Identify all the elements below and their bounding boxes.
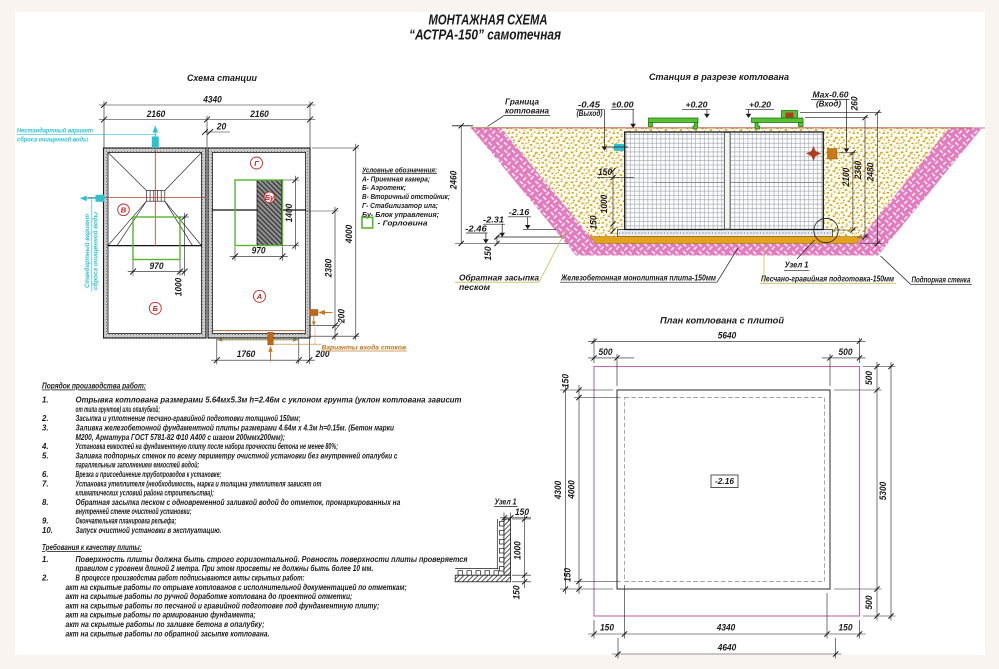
svg-text:3.: 3. xyxy=(42,424,49,433)
svg-text:1760: 1760 xyxy=(237,349,256,359)
svg-text:150: 150 xyxy=(515,507,529,517)
svg-text:8.: 8. xyxy=(42,498,49,507)
svg-text:500: 500 xyxy=(599,347,613,357)
svg-text:4000: 4000 xyxy=(567,480,577,499)
svg-text:сброса очищенной воды: сброса очищенной воды xyxy=(17,136,88,144)
svg-text:Узел 1: Узел 1 xyxy=(495,497,517,506)
svg-text:+0.20: +0.20 xyxy=(686,101,709,110)
svg-text:параллельным заполнением емкос: параллельным заполнением емкостей водой; xyxy=(76,461,200,470)
svg-text:500: 500 xyxy=(839,347,853,357)
svg-text:4000: 4000 xyxy=(344,225,354,244)
svg-text:1000: 1000 xyxy=(513,541,523,560)
svg-text:150: 150 xyxy=(483,247,493,261)
svg-text:4640: 4640 xyxy=(717,643,736,653)
svg-text:Засыпка и уплотнение песчано-г: Засыпка и уплотнение песчано-гравийной п… xyxy=(76,414,301,423)
svg-text:150: 150 xyxy=(839,623,853,633)
svg-text:500: 500 xyxy=(864,596,874,610)
svg-text:акт на скрытые работы по ручно: акт на скрытые работы по ручной доработк… xyxy=(66,592,353,601)
svg-text:2.: 2. xyxy=(41,414,49,423)
svg-text:(Вход): (Вход) xyxy=(816,100,841,109)
svg-text:Схема станции: Схема станции xyxy=(187,73,257,83)
svg-text:Подпорная стенка: Подпорная стенка xyxy=(912,275,971,284)
svg-text:260: 260 xyxy=(850,97,860,112)
svg-text:150: 150 xyxy=(600,623,614,633)
svg-text:150: 150 xyxy=(561,374,571,388)
svg-text:Г- Стабилизатор ила;: Г- Стабилизатор ила; xyxy=(362,201,438,210)
svg-text:1000: 1000 xyxy=(599,195,609,214)
svg-text:Поверхность плиты должна быть: Поверхность плиты должна быть строго гор… xyxy=(76,555,468,564)
svg-text:200: 200 xyxy=(337,309,347,324)
svg-text:А: А xyxy=(256,292,262,301)
svg-text:Окончательная планировка релье: Окончательная планировка рельефа; xyxy=(76,517,177,526)
svg-text:акт на скрытые работы по отрыв: акт на скрытые работы по отрывке котлова… xyxy=(66,583,408,592)
svg-text:Обратная засыпка: Обратная засыпка xyxy=(459,274,540,283)
svg-text:климатических условий района с: климатических условий района строительст… xyxy=(76,489,215,498)
svg-text:5300: 5300 xyxy=(878,482,888,501)
svg-text:2100: 2100 xyxy=(841,168,851,187)
svg-text:1400: 1400 xyxy=(284,204,294,223)
svg-text:9.: 9. xyxy=(42,517,49,526)
svg-text:4300: 4300 xyxy=(553,481,563,500)
svg-text:-2.46: -2.46 xyxy=(465,224,487,233)
svg-text:акт на скрытые работы по обрат: акт на скрытые работы по обратной засыпк… xyxy=(66,629,270,638)
svg-text:6.: 6. xyxy=(42,470,49,479)
svg-text:Б: Б xyxy=(153,304,159,313)
svg-text:Станция в разрезе котлована: Станция в разрезе котлована xyxy=(649,72,789,82)
svg-text:2380: 2380 xyxy=(323,259,333,278)
svg-text:Порядок производства работ:: Порядок производства работ: xyxy=(42,382,146,391)
svg-text:20: 20 xyxy=(216,121,226,131)
svg-text:от типа грунтов) или опалубкой: от типа грунтов) или опалубкой; xyxy=(76,405,161,414)
svg-text:±0.00: ±0.00 xyxy=(612,101,635,110)
svg-text:котлована: котлована xyxy=(505,107,550,116)
svg-text:Требования к качеству плиты:: Требования к качеству плиты: xyxy=(42,543,142,552)
svg-text:Заливка подпорных стенок по вс: Заливка подпорных стенок по всему периме… xyxy=(76,451,399,460)
svg-text:Бу: Бу xyxy=(265,193,275,202)
svg-text:сброса очищенной воды: сброса очищенной воды xyxy=(91,212,99,290)
svg-text:акт на скрытые работы по залив: акт на скрытые работы по заливке бетона … xyxy=(66,620,265,629)
svg-text:песком: песком xyxy=(459,283,490,292)
svg-text:Железобетонная монолитная плит: Железобетонная монолитная плита-150мм xyxy=(560,273,716,282)
svg-text:(Выход): (Выход) xyxy=(577,109,603,118)
svg-text:В процессе производства работ: В процессе производства работ подписываю… xyxy=(76,574,305,583)
svg-text:-2.16: -2.16 xyxy=(715,477,735,486)
svg-text:1000: 1000 xyxy=(174,278,184,297)
svg-text:Заливка железобетонной фундаме: Заливка железобетонной фундаментной плит… xyxy=(76,424,395,433)
svg-text:500: 500 xyxy=(864,371,874,385)
svg-text:7.: 7. xyxy=(42,479,49,488)
svg-text:150: 150 xyxy=(512,586,522,600)
svg-text:Условные обозначения:: Условные обозначения: xyxy=(362,165,437,174)
svg-text:Б- Аэротенк;: Б- Аэротенк; xyxy=(362,183,406,192)
svg-text:А- Приемная камера;: А- Приемная камера; xyxy=(361,174,430,183)
svg-text:+0.20: +0.20 xyxy=(749,101,772,110)
svg-text:М200, Арматура ГОСТ 5781-82 Ф1: М200, Арматура ГОСТ 5781-82 Ф10 А400 с ш… xyxy=(76,433,286,442)
svg-text:Узел 1: Узел 1 xyxy=(785,261,810,270)
svg-text:2360: 2360 xyxy=(853,161,863,180)
svg-text:4340: 4340 xyxy=(202,94,221,104)
svg-text:В- Вторичный отстойник;: В- Вторичный отстойник; xyxy=(362,192,450,201)
svg-text:150: 150 xyxy=(589,216,599,230)
svg-text:150: 150 xyxy=(598,167,612,177)
svg-text:“АСТРА-150” самотечная: “АСТРА-150” самотечная xyxy=(409,27,561,44)
svg-text:Г: Г xyxy=(254,159,259,168)
svg-text:5640: 5640 xyxy=(718,330,737,340)
svg-text:внутренней стенке очистной уст: внутренней стенке очистной установки; xyxy=(76,507,192,516)
svg-text:Отрывка котлована размерами 5.: Отрывка котлована размерами 5.64мх5.3м h… xyxy=(76,396,462,405)
svg-text:- Горловина: - Горловина xyxy=(378,218,428,227)
svg-text:2160: 2160 xyxy=(146,109,165,119)
svg-text:2160: 2160 xyxy=(249,109,268,119)
svg-text:10.: 10. xyxy=(42,526,53,535)
svg-text:Варианты входа стоков: Варианты входа стоков xyxy=(322,343,407,351)
svg-text:-2.16: -2.16 xyxy=(509,208,530,217)
svg-text:2480: 2480 xyxy=(866,163,876,182)
svg-text:970: 970 xyxy=(252,246,266,256)
svg-text:5.: 5. xyxy=(42,451,49,460)
svg-text:1.: 1. xyxy=(42,555,49,564)
svg-text:Песчано-гравийная подготовка-1: Песчано-гравийная подготовка-150мм xyxy=(761,274,894,283)
svg-text:Нестандартный вариант: Нестандартный вариант xyxy=(17,127,93,135)
svg-text:В: В xyxy=(121,206,127,215)
svg-text:4340: 4340 xyxy=(716,623,735,633)
svg-text:970: 970 xyxy=(150,261,164,271)
svg-text:2.: 2. xyxy=(41,574,49,583)
svg-text:150: 150 xyxy=(563,568,573,582)
svg-text:Стандартный вариант: Стандартный вариант xyxy=(83,214,91,288)
svg-text:Врезка и присоединение трубопр: Врезка и присоединение трубопроводов к у… xyxy=(76,470,222,479)
svg-text:Граница: Граница xyxy=(505,98,540,107)
svg-text:-2.31: -2.31 xyxy=(483,216,505,225)
svg-text:1.: 1. xyxy=(42,396,49,405)
svg-text:4.: 4. xyxy=(41,442,49,451)
svg-text:Установка емкостей на фундамен: Установка емкостей на фундаментную плиту… xyxy=(76,442,339,451)
svg-text:План котлована с плитой: План котлована с плитой xyxy=(660,316,785,326)
svg-text:Установка утеплителя (необходи: Установка утеплителя (необходимость, мар… xyxy=(76,479,322,488)
svg-text:Обратная засыпка песком с одно: Обратная засыпка песком с одновременной … xyxy=(76,498,401,507)
svg-text:акт на скрытые работы по армир: акт на скрытые работы по армированию фун… xyxy=(66,611,256,620)
svg-text:правилом с уровнем длиной 2 ме: правилом с уровнем длиной 2 метра. При э… xyxy=(76,564,374,573)
svg-text:акт на скрытые работы по песча: акт на скрытые работы по песчаной и грав… xyxy=(66,601,380,610)
svg-text:Max-0.60: Max-0.60 xyxy=(813,91,850,100)
svg-text:2460: 2460 xyxy=(449,171,459,190)
svg-text:Запуск очистной установки в эк: Запуск очистной установки в эксплуатацию… xyxy=(76,526,222,535)
